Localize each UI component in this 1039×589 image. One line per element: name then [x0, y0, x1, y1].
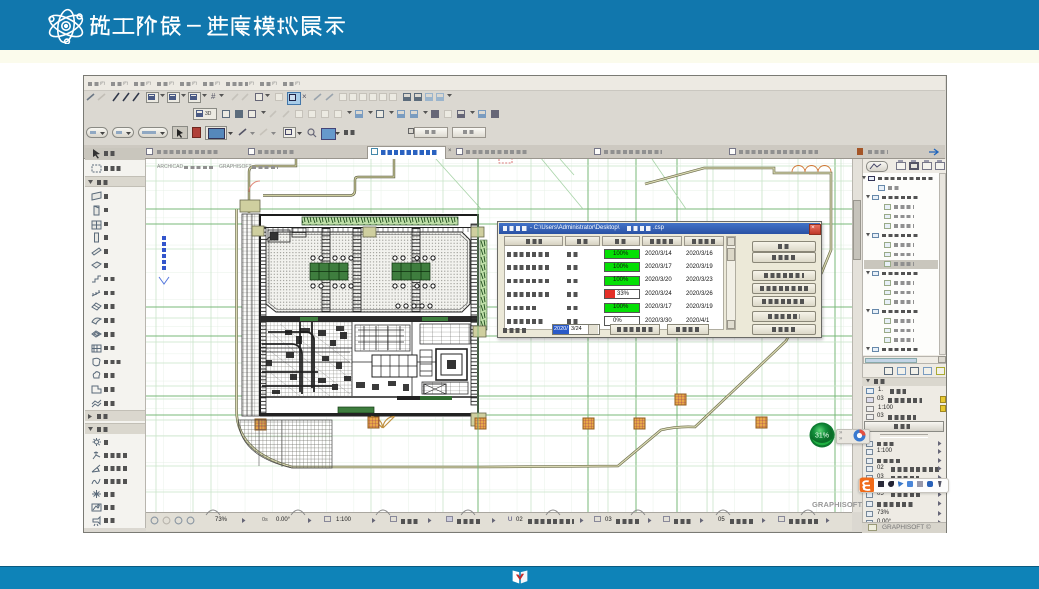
svg-text:31%: 31% [815, 433, 829, 440]
